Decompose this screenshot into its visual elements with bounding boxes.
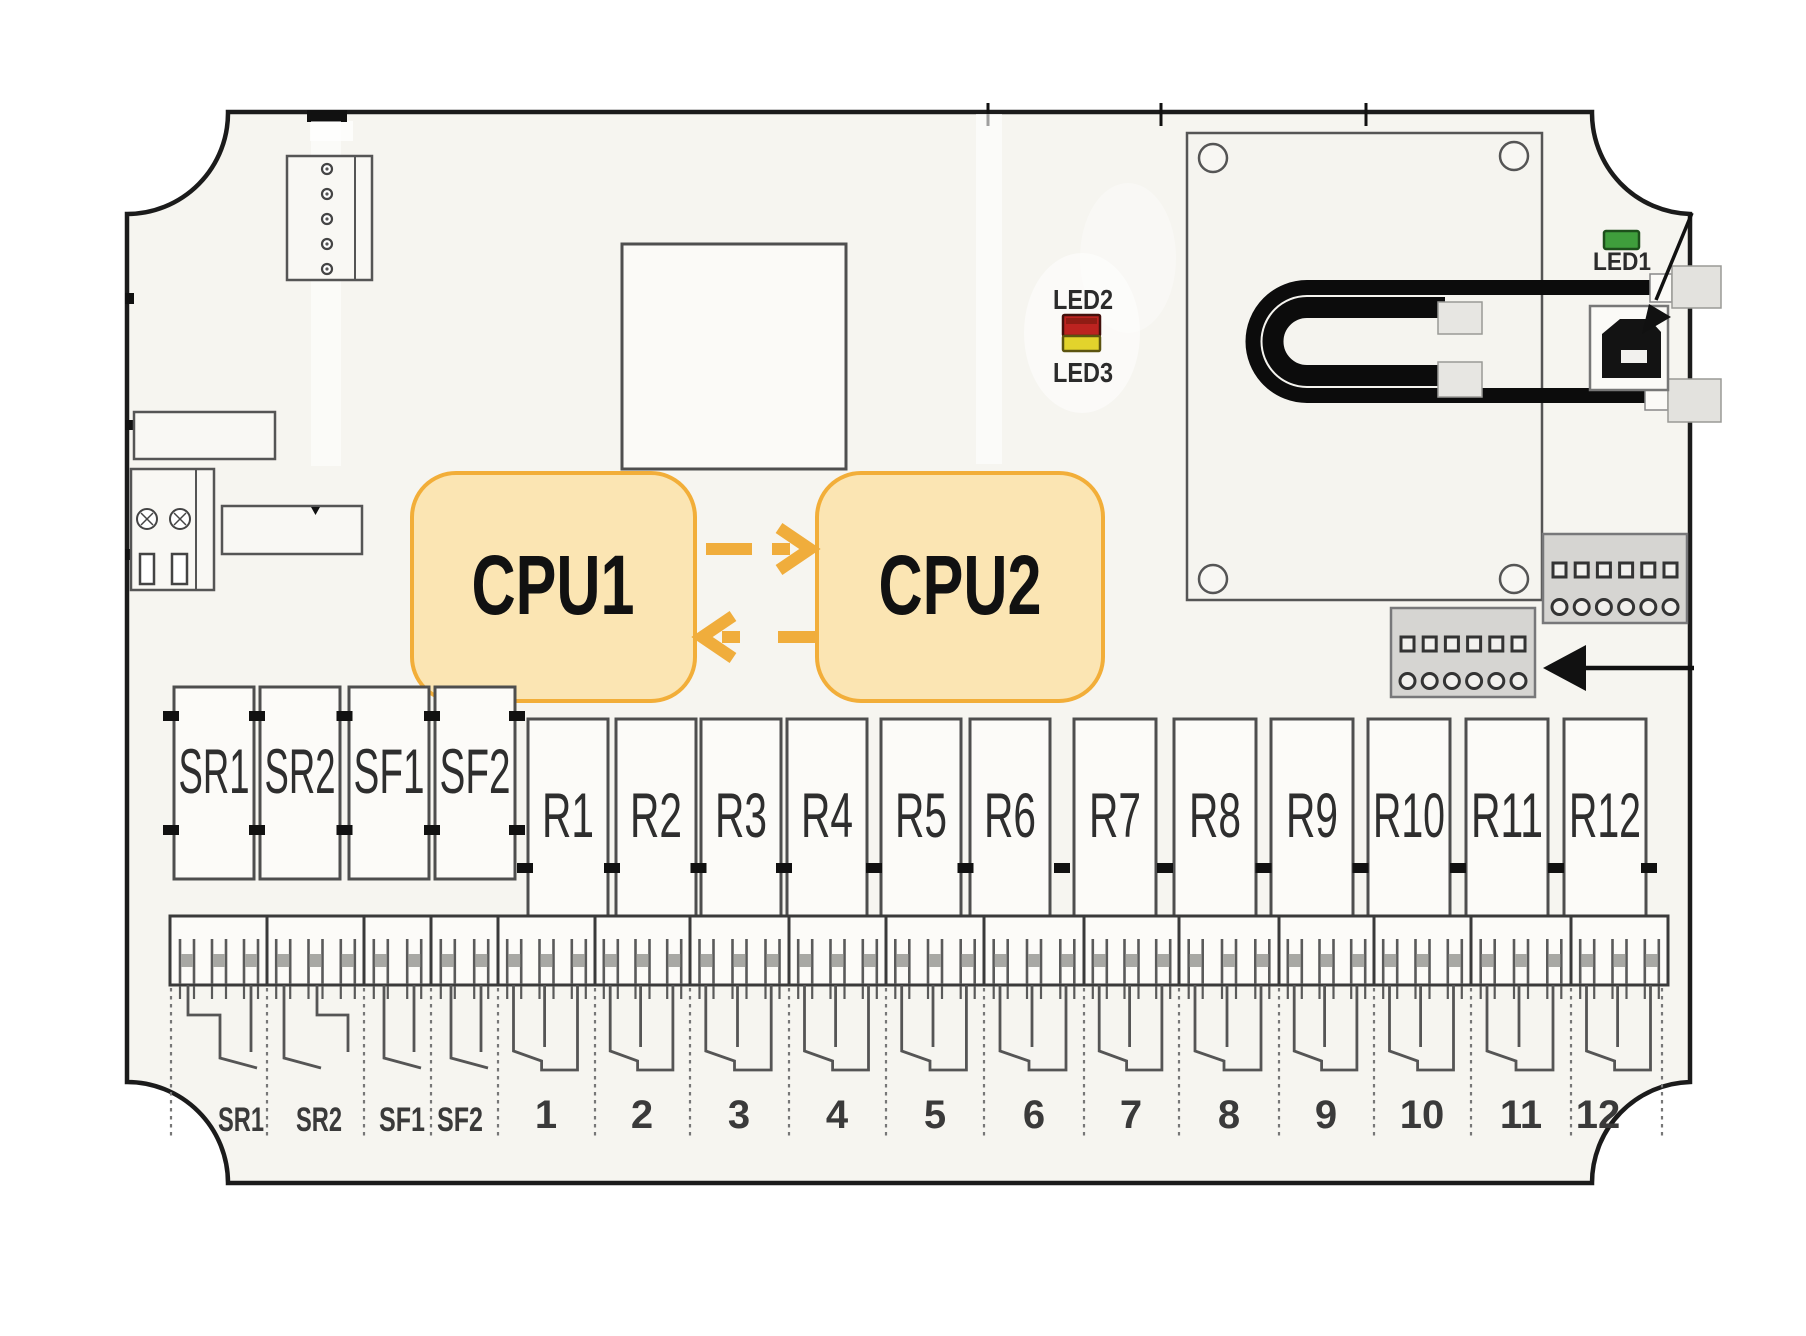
svg-text:SF1: SF1 [379,1101,425,1139]
svg-text:8: 8 [1218,1093,1240,1137]
svg-text:6: 6 [1023,1093,1045,1137]
svg-text:3: 3 [728,1093,750,1137]
svg-text:SR1: SR1 [218,1101,264,1139]
svg-text:9: 9 [1315,1093,1337,1137]
svg-text:R6: R6 [984,781,1036,851]
svg-text:LED2: LED2 [1053,284,1113,315]
svg-text:4: 4 [826,1093,849,1137]
svg-text:1: 1 [535,1093,557,1137]
svg-text:CPU1: CPU1 [472,538,635,632]
svg-text:SF2: SF2 [440,737,511,807]
svg-text:SR2: SR2 [296,1101,342,1139]
svg-text:R5: R5 [895,781,947,851]
svg-text:SF2: SF2 [437,1101,483,1139]
svg-text:SF1: SF1 [354,737,425,807]
svg-text:7: 7 [1120,1093,1142,1137]
svg-text:CPU2: CPU2 [879,538,1042,632]
svg-text:5: 5 [924,1093,946,1137]
svg-text:R10: R10 [1373,781,1445,851]
svg-text:R12: R12 [1569,781,1641,851]
svg-text:SR2: SR2 [265,737,336,807]
svg-text:SR1: SR1 [179,737,250,807]
svg-text:R1: R1 [542,781,594,851]
svg-text:R9: R9 [1286,781,1338,851]
svg-text:10: 10 [1400,1093,1445,1137]
svg-text:R3: R3 [715,781,767,851]
svg-text:R11: R11 [1471,781,1543,851]
svg-text:LED3: LED3 [1053,357,1113,388]
svg-text:11: 11 [1500,1093,1542,1137]
svg-text:R7: R7 [1089,781,1141,851]
svg-text:R8: R8 [1189,781,1241,851]
svg-text:2: 2 [631,1093,653,1137]
svg-text:R4: R4 [801,781,853,851]
svg-text:R2: R2 [630,781,682,851]
svg-text:LED1: LED1 [1593,248,1651,276]
svg-text:12: 12 [1576,1093,1621,1137]
